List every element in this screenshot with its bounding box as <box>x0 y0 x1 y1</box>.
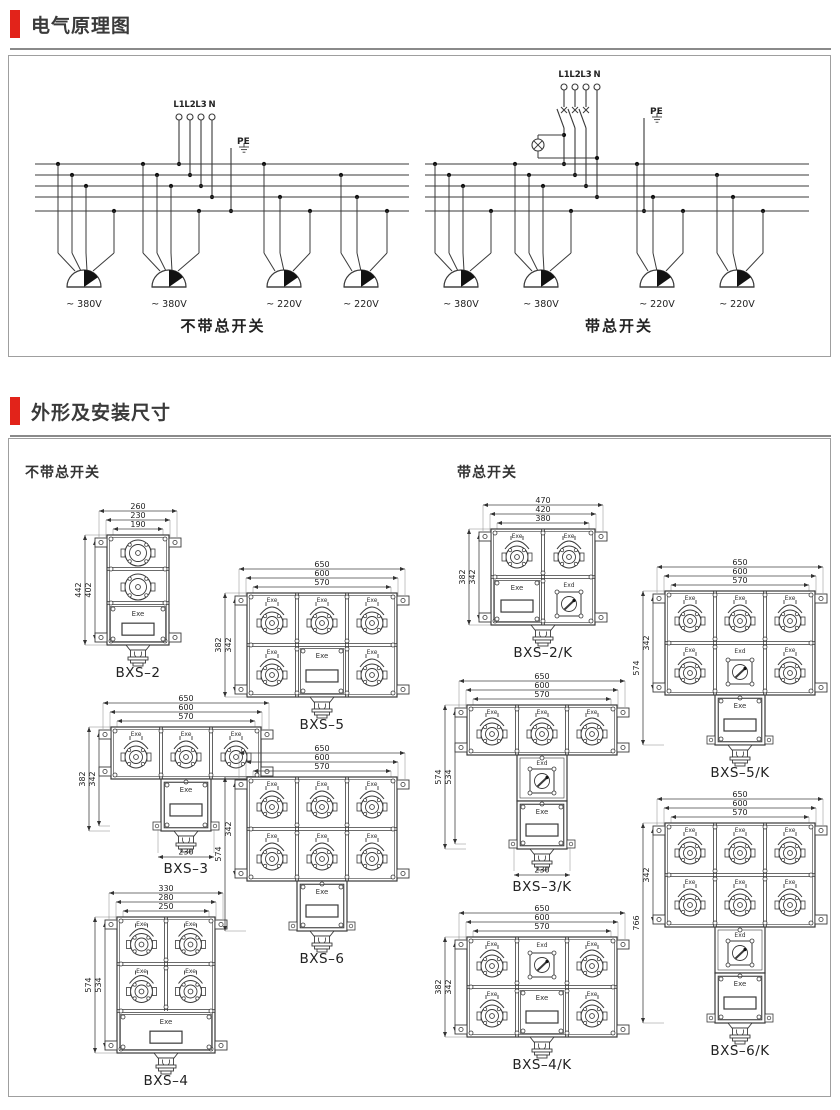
drawing-BXS–5/K: 650600570574342ExeExeExeExeExdExeExeBXS–… <box>627 555 833 781</box>
nameplate-window <box>501 600 533 612</box>
exe-marking: Exe <box>785 647 796 654</box>
side-dimension-label: 382 <box>434 979 443 994</box>
terminal-icon <box>561 84 567 90</box>
top-dimension-label: 230 <box>130 511 145 520</box>
exe-marking: Exe <box>735 879 746 886</box>
exe-marking: Exe <box>536 994 549 1002</box>
top-dimension-label: 470 <box>535 496 550 505</box>
model-label: BXS–5 <box>300 717 345 733</box>
side-dimension-label: 442 <box>74 582 83 597</box>
nameplate-window <box>170 804 202 816</box>
top-dimension-label: 570 <box>732 576 747 585</box>
red-accent-bar <box>10 397 20 425</box>
top-dimension-label: 650 <box>534 672 549 681</box>
terminal-label: N <box>593 70 600 80</box>
drawing-BXS–6/K: 650600570766342ExeExeExeExeExeExeExdExeB… <box>627 787 833 1059</box>
exe-marking: Exe <box>785 879 796 886</box>
cable-gland-icon <box>310 931 334 936</box>
schematic-section-title: 电气原理图 <box>31 11 131 38</box>
exe-marking: Exe <box>685 595 696 602</box>
output-voltage-label: ~ 220V <box>719 299 755 310</box>
side-dimension-label: 574 <box>632 660 641 675</box>
exe-marking: Exe <box>685 879 696 886</box>
model-label: BXS–6/K <box>710 1043 770 1059</box>
exe-marking: Exe <box>512 533 523 540</box>
top-dimension-label: 600 <box>534 681 549 690</box>
terminal-icon <box>176 114 182 120</box>
cable-gland-icon <box>531 625 555 630</box>
exe-marking: Exe <box>367 649 378 656</box>
exd-marking: Exd <box>536 760 547 767</box>
schematic-section-header: 电气原理图 <box>10 8 831 50</box>
top-dimension-label: 600 <box>732 567 747 576</box>
exe-marking: Exe <box>185 921 196 928</box>
exe-marking: Exe <box>587 709 598 716</box>
terminal-label: N <box>208 100 215 110</box>
exe-marking: Exe <box>267 781 278 788</box>
group-label-without-switch: 不带总开关 <box>25 462 100 482</box>
cable-gland-icon <box>126 645 150 650</box>
drawing-BXS–3/K: 650600570574534ExeExeExeExdExe230BXS–3/K <box>429 669 635 895</box>
exe-marking: Exe <box>317 833 328 840</box>
exe-marking: Exe <box>734 702 747 710</box>
top-dimension-label: 570 <box>314 762 329 771</box>
exe-marking: Exe <box>136 921 147 928</box>
top-dimension-label: 650 <box>178 694 193 703</box>
terminal-icon <box>583 84 589 90</box>
side-dimension-label: 342 <box>444 979 453 994</box>
exd-marking: Exd <box>536 942 547 949</box>
side-dimension-label: 574 <box>84 977 93 992</box>
nameplate-window <box>306 905 338 917</box>
output-voltage-label: ~ 380V <box>66 299 102 310</box>
drawing-BXS–6: 650600570574342ExeExeExeExeExeExeExeBXS–… <box>209 741 415 967</box>
exe-marking: Exe <box>685 647 696 654</box>
output-voltage-label: ~ 220V <box>639 299 675 310</box>
cable-gland-icon <box>154 1053 178 1058</box>
model-label: BXS–3/K <box>512 879 572 895</box>
exe-marking: Exe <box>685 827 696 834</box>
model-label: BXS–4/K <box>512 1057 572 1073</box>
output-voltage-label: ~ 380V <box>443 299 479 310</box>
nameplate-window <box>724 997 756 1009</box>
terminal-label: L3 <box>195 100 206 110</box>
pe-label: PE <box>237 137 250 147</box>
side-dimension-label: 534 <box>94 977 103 992</box>
top-dimension-label: 600 <box>314 569 329 578</box>
output-voltage-label: ~ 380V <box>523 299 559 310</box>
exe-marking: Exe <box>316 888 329 896</box>
nameplate-window <box>150 1031 182 1043</box>
nameplate-window <box>526 1011 558 1023</box>
side-dimension-label: 574 <box>434 769 443 784</box>
top-dimension-label: 570 <box>534 922 549 931</box>
bottom-dimension-label: 230 <box>534 866 549 875</box>
top-dimension-label: 650 <box>314 560 329 569</box>
side-dimension-label: 342 <box>224 637 233 652</box>
top-dimension-label: 650 <box>534 904 549 913</box>
top-dimension-label: 570 <box>178 712 193 721</box>
exe-marking: Exe <box>317 597 328 604</box>
terminal-icon <box>187 114 193 120</box>
top-dimension-label: 570 <box>314 578 329 587</box>
nameplate-window <box>724 719 756 731</box>
exe-marking: Exe <box>564 533 575 540</box>
top-dimension-label: 650 <box>732 790 747 799</box>
drawing-BXS–4/K: 650600570382342ExeExdExeExeExeExeBXS–4/K <box>429 901 635 1073</box>
exe-marking: Exe <box>735 595 746 602</box>
circuit-without-main-switch: L1L2L3NPE~ 380V~ 380V~ 220V~ 220V不带总开关 <box>29 91 419 343</box>
exe-marking: Exe <box>267 649 278 656</box>
exe-marking: Exe <box>537 709 548 716</box>
circuit-caption: 带总开关 <box>585 317 653 335</box>
top-dimension-label: 260 <box>130 502 145 511</box>
exe-marking: Exe <box>316 652 329 660</box>
side-dimension-label: 342 <box>468 569 477 584</box>
schematic-panel: L1L2L3NPE~ 380V~ 380V~ 220V~ 220V不带总开关 L… <box>8 55 831 357</box>
model-label: BXS–2 <box>116 665 161 681</box>
exe-marking: Exe <box>487 709 498 716</box>
terminal-label: L2 <box>569 70 580 80</box>
exe-marking: Exe <box>367 781 378 788</box>
exe-marking: Exe <box>131 731 142 738</box>
drawing-BXS–2/K: 470420380382342ExeExeExeExdBXS–2/K <box>453 493 613 661</box>
output-voltage-label: ~ 220V <box>343 299 379 310</box>
top-dimension-label: 600 <box>534 913 549 922</box>
terminal-label: L3 <box>580 70 591 80</box>
top-dimension-label: 600 <box>314 753 329 762</box>
drawing-BXS–2: 260230190442402ExeBXS–2 <box>69 499 187 681</box>
exe-marking: Exe <box>511 584 524 592</box>
exe-marking: Exe <box>536 808 549 816</box>
top-dimension-label: 420 <box>535 505 550 514</box>
group-label-with-switch: 带总开关 <box>457 462 517 482</box>
side-dimension-label: 382 <box>458 569 467 584</box>
top-dimension-label: 600 <box>178 703 193 712</box>
model-label: BXS–3 <box>164 861 209 877</box>
exe-marking: Exe <box>267 597 278 604</box>
top-dimension-label: 650 <box>732 558 747 567</box>
top-dimension-label: 330 <box>158 884 173 893</box>
exe-marking: Exe <box>267 833 278 840</box>
exe-marking: Exe <box>180 786 193 794</box>
terminal-icon <box>572 84 578 90</box>
nameplate-window <box>122 623 154 635</box>
circuit-with-main-switch: L1L2L3NPE~ 380V~ 380V~ 220V~ 220V带总开关 <box>419 61 823 347</box>
output-voltage-label: ~ 220V <box>266 299 302 310</box>
side-dimension-label: 382 <box>78 771 87 786</box>
cable-gland-icon <box>530 1037 554 1042</box>
circuit-group: L1L2L3NPE~ 380V~ 380V~ 220V~ 220V不带总开关 <box>35 100 409 335</box>
exe-marking: Exe <box>132 610 145 618</box>
exe-marking: Exe <box>487 941 498 948</box>
exd-marking: Exd <box>734 648 745 655</box>
model-label: BXS–5/K <box>710 765 770 781</box>
top-dimension-label: 650 <box>314 744 329 753</box>
top-dimension-label: 570 <box>732 808 747 817</box>
top-dimension-label: 380 <box>535 514 550 523</box>
cable-gland-icon <box>728 1023 752 1028</box>
side-dimension-label: 402 <box>84 582 93 597</box>
exe-marking: Exe <box>734 980 747 988</box>
dimensions-section-title: 外形及安装尺寸 <box>31 398 171 425</box>
model-label: BXS–6 <box>300 951 345 967</box>
exe-marking: Exe <box>160 1018 173 1026</box>
nameplate-window <box>526 824 558 836</box>
side-dimension-label: 382 <box>214 637 223 652</box>
exe-marking: Exe <box>785 827 796 834</box>
dimensions-section-header: 外形及安装尺寸 <box>10 395 831 437</box>
terminal-icon <box>198 114 204 120</box>
exe-marking: Exe <box>735 827 746 834</box>
drawing-BXS–5: 650600570382342ExeExeExeExeExeExeBXS–5 <box>209 557 415 733</box>
dimensions-panel: 不带总开关 带总开关 260230190442402ExeBXS–2650600… <box>8 438 831 1097</box>
side-dimension-label: 342 <box>642 635 651 650</box>
cable-gland-icon <box>728 745 752 750</box>
exe-marking: Exe <box>487 991 498 998</box>
exe-marking: Exe <box>317 781 328 788</box>
red-accent-bar <box>10 10 20 38</box>
top-dimension-label: 250 <box>158 902 173 911</box>
terminal-label: L1 <box>558 70 569 80</box>
top-dimension-label: 280 <box>158 893 173 902</box>
cable-gland-icon <box>310 697 334 702</box>
terminal-icon <box>594 84 600 90</box>
exe-marking: Exe <box>785 595 796 602</box>
cable-gland-icon <box>174 831 198 836</box>
side-dimension-label: 342 <box>642 867 651 882</box>
exe-marking: Exe <box>181 731 192 738</box>
model-label: BXS–4 <box>144 1073 189 1089</box>
terminal-label: L1 <box>173 100 184 110</box>
exe-marking: Exe <box>367 597 378 604</box>
circuit-group: L1L2L3NPE~ 380V~ 380V~ 220V~ 220V带总开关 <box>425 70 809 335</box>
side-dimension-label: 342 <box>88 771 97 786</box>
nameplate-window <box>306 670 338 682</box>
terminal-label: L2 <box>184 100 195 110</box>
side-dimension-label: 574 <box>214 846 223 861</box>
side-dimension-label: 342 <box>224 821 233 836</box>
exe-marking: Exe <box>587 941 598 948</box>
exd-marking: Exd <box>563 582 574 589</box>
circuit-caption: 不带总开关 <box>180 317 265 335</box>
exe-marking: Exe <box>136 968 147 975</box>
exe-marking: Exe <box>367 833 378 840</box>
model-label: BXS–2/K <box>513 645 573 661</box>
terminal-icon <box>209 114 215 120</box>
cable-gland-icon <box>530 849 554 854</box>
pe-label: PE <box>650 107 663 117</box>
top-dimension-label: 190 <box>130 520 145 529</box>
exd-marking: Exd <box>734 932 745 939</box>
top-dimension-label: 600 <box>732 799 747 808</box>
exe-marking: Exe <box>185 968 196 975</box>
output-voltage-label: ~ 380V <box>151 299 187 310</box>
bottom-dimension-label: 230 <box>178 848 193 857</box>
side-dimension-label: 534 <box>444 769 453 784</box>
top-dimension-label: 570 <box>534 690 549 699</box>
exe-marking: Exe <box>587 991 598 998</box>
side-dimension-label: 766 <box>632 915 641 930</box>
